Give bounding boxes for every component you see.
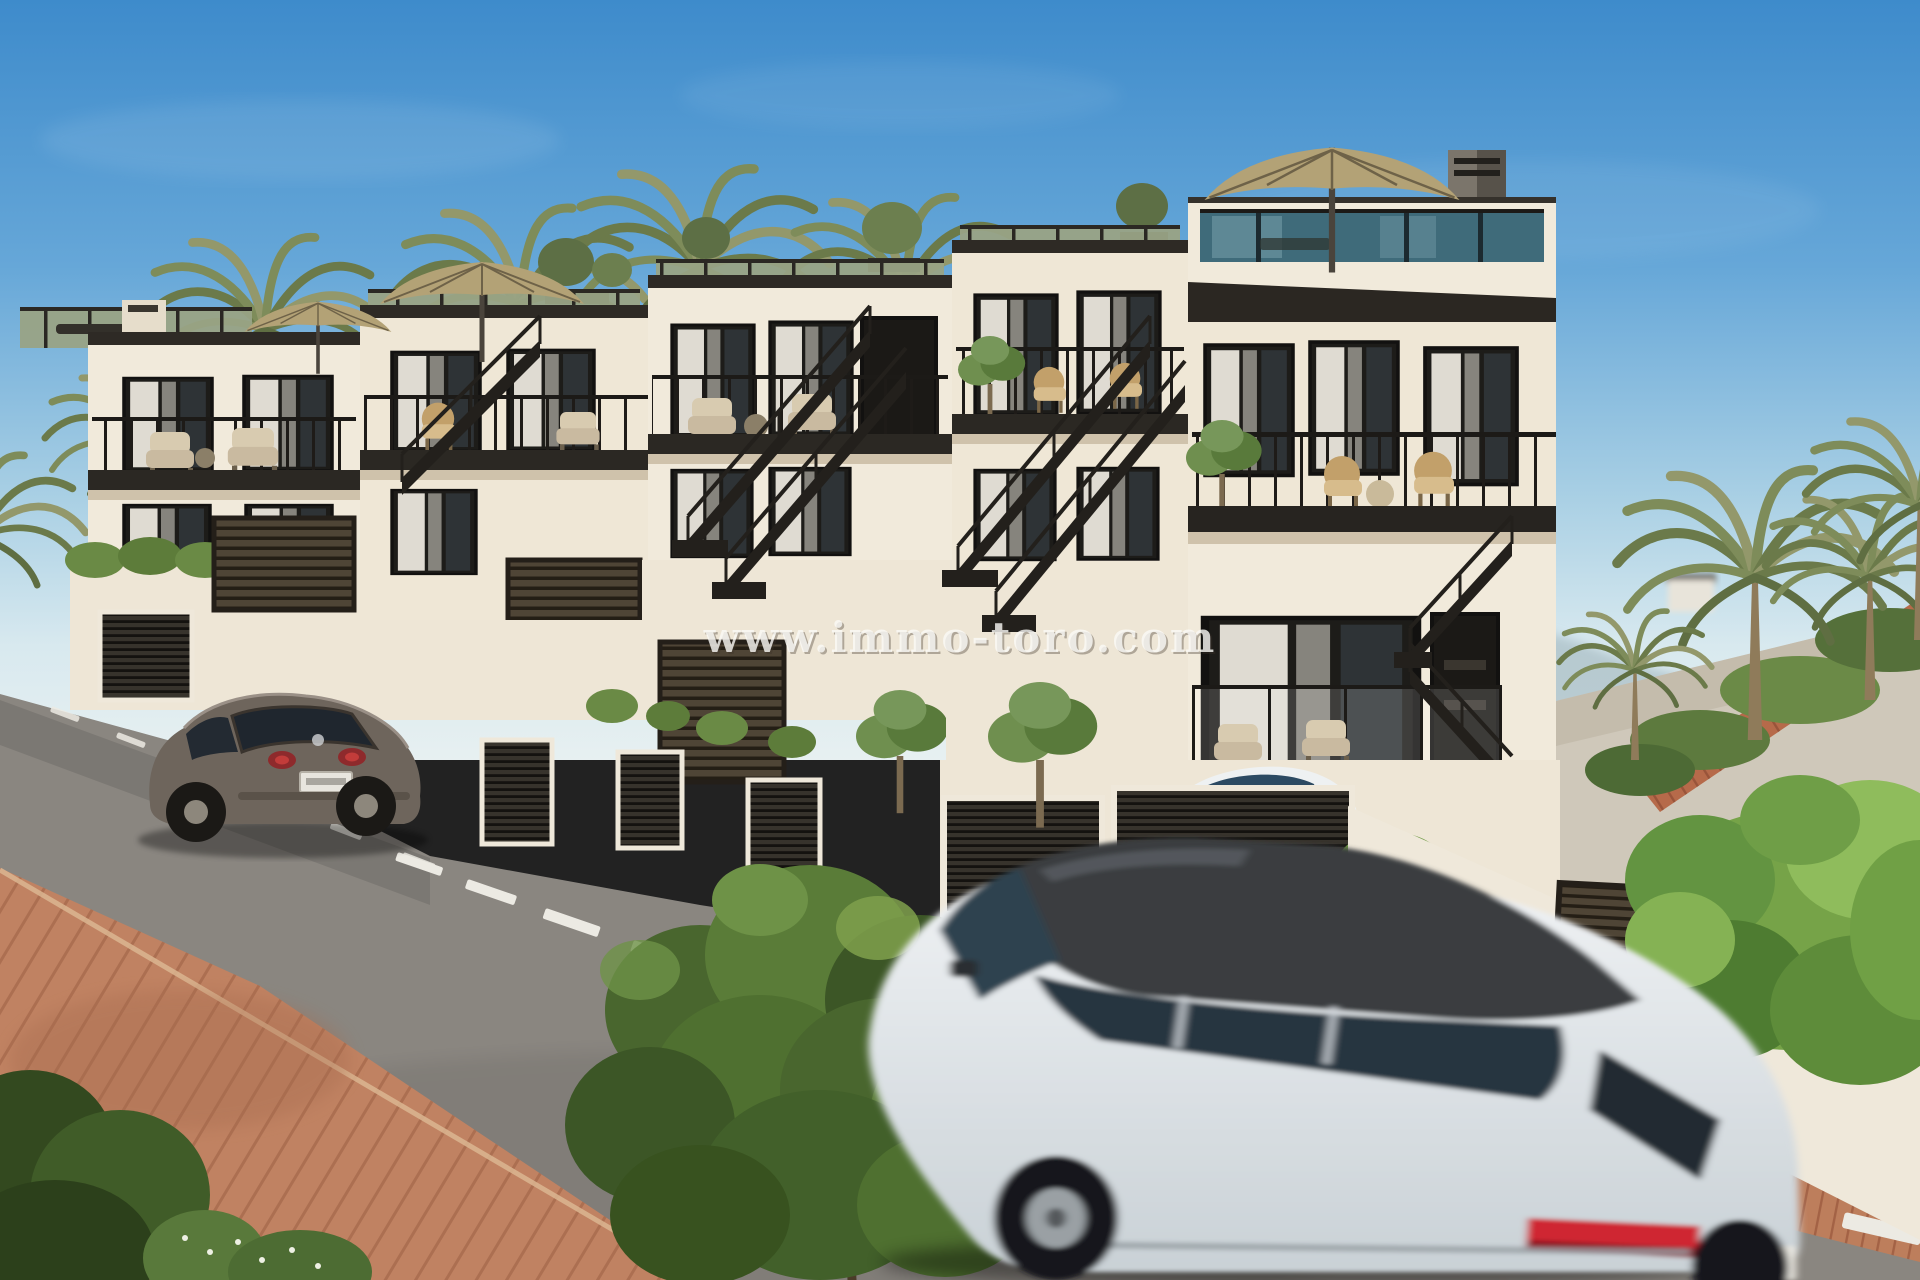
chimney	[122, 300, 166, 332]
louver-gate	[482, 740, 552, 844]
watermark: www.immo-toro.com www.immo-toro.com	[703, 613, 1219, 664]
balcony	[1186, 420, 1556, 544]
property-render-photo: www.immo-toro.com www.immo-toro.com	[0, 0, 1920, 1280]
garage-roller-door	[214, 518, 354, 610]
hedge-row	[65, 537, 235, 578]
balcony	[88, 417, 360, 500]
cloud	[680, 61, 1120, 129]
watermark-text: www.immo-toro.com	[703, 613, 1217, 662]
render-scene: www.immo-toro.com www.immo-toro.com	[0, 0, 1920, 1280]
townhouse-d	[942, 183, 1194, 760]
cloud	[40, 100, 560, 180]
louver-gate	[618, 752, 682, 848]
louver-gate	[100, 612, 192, 700]
suv-mirror	[950, 960, 978, 977]
